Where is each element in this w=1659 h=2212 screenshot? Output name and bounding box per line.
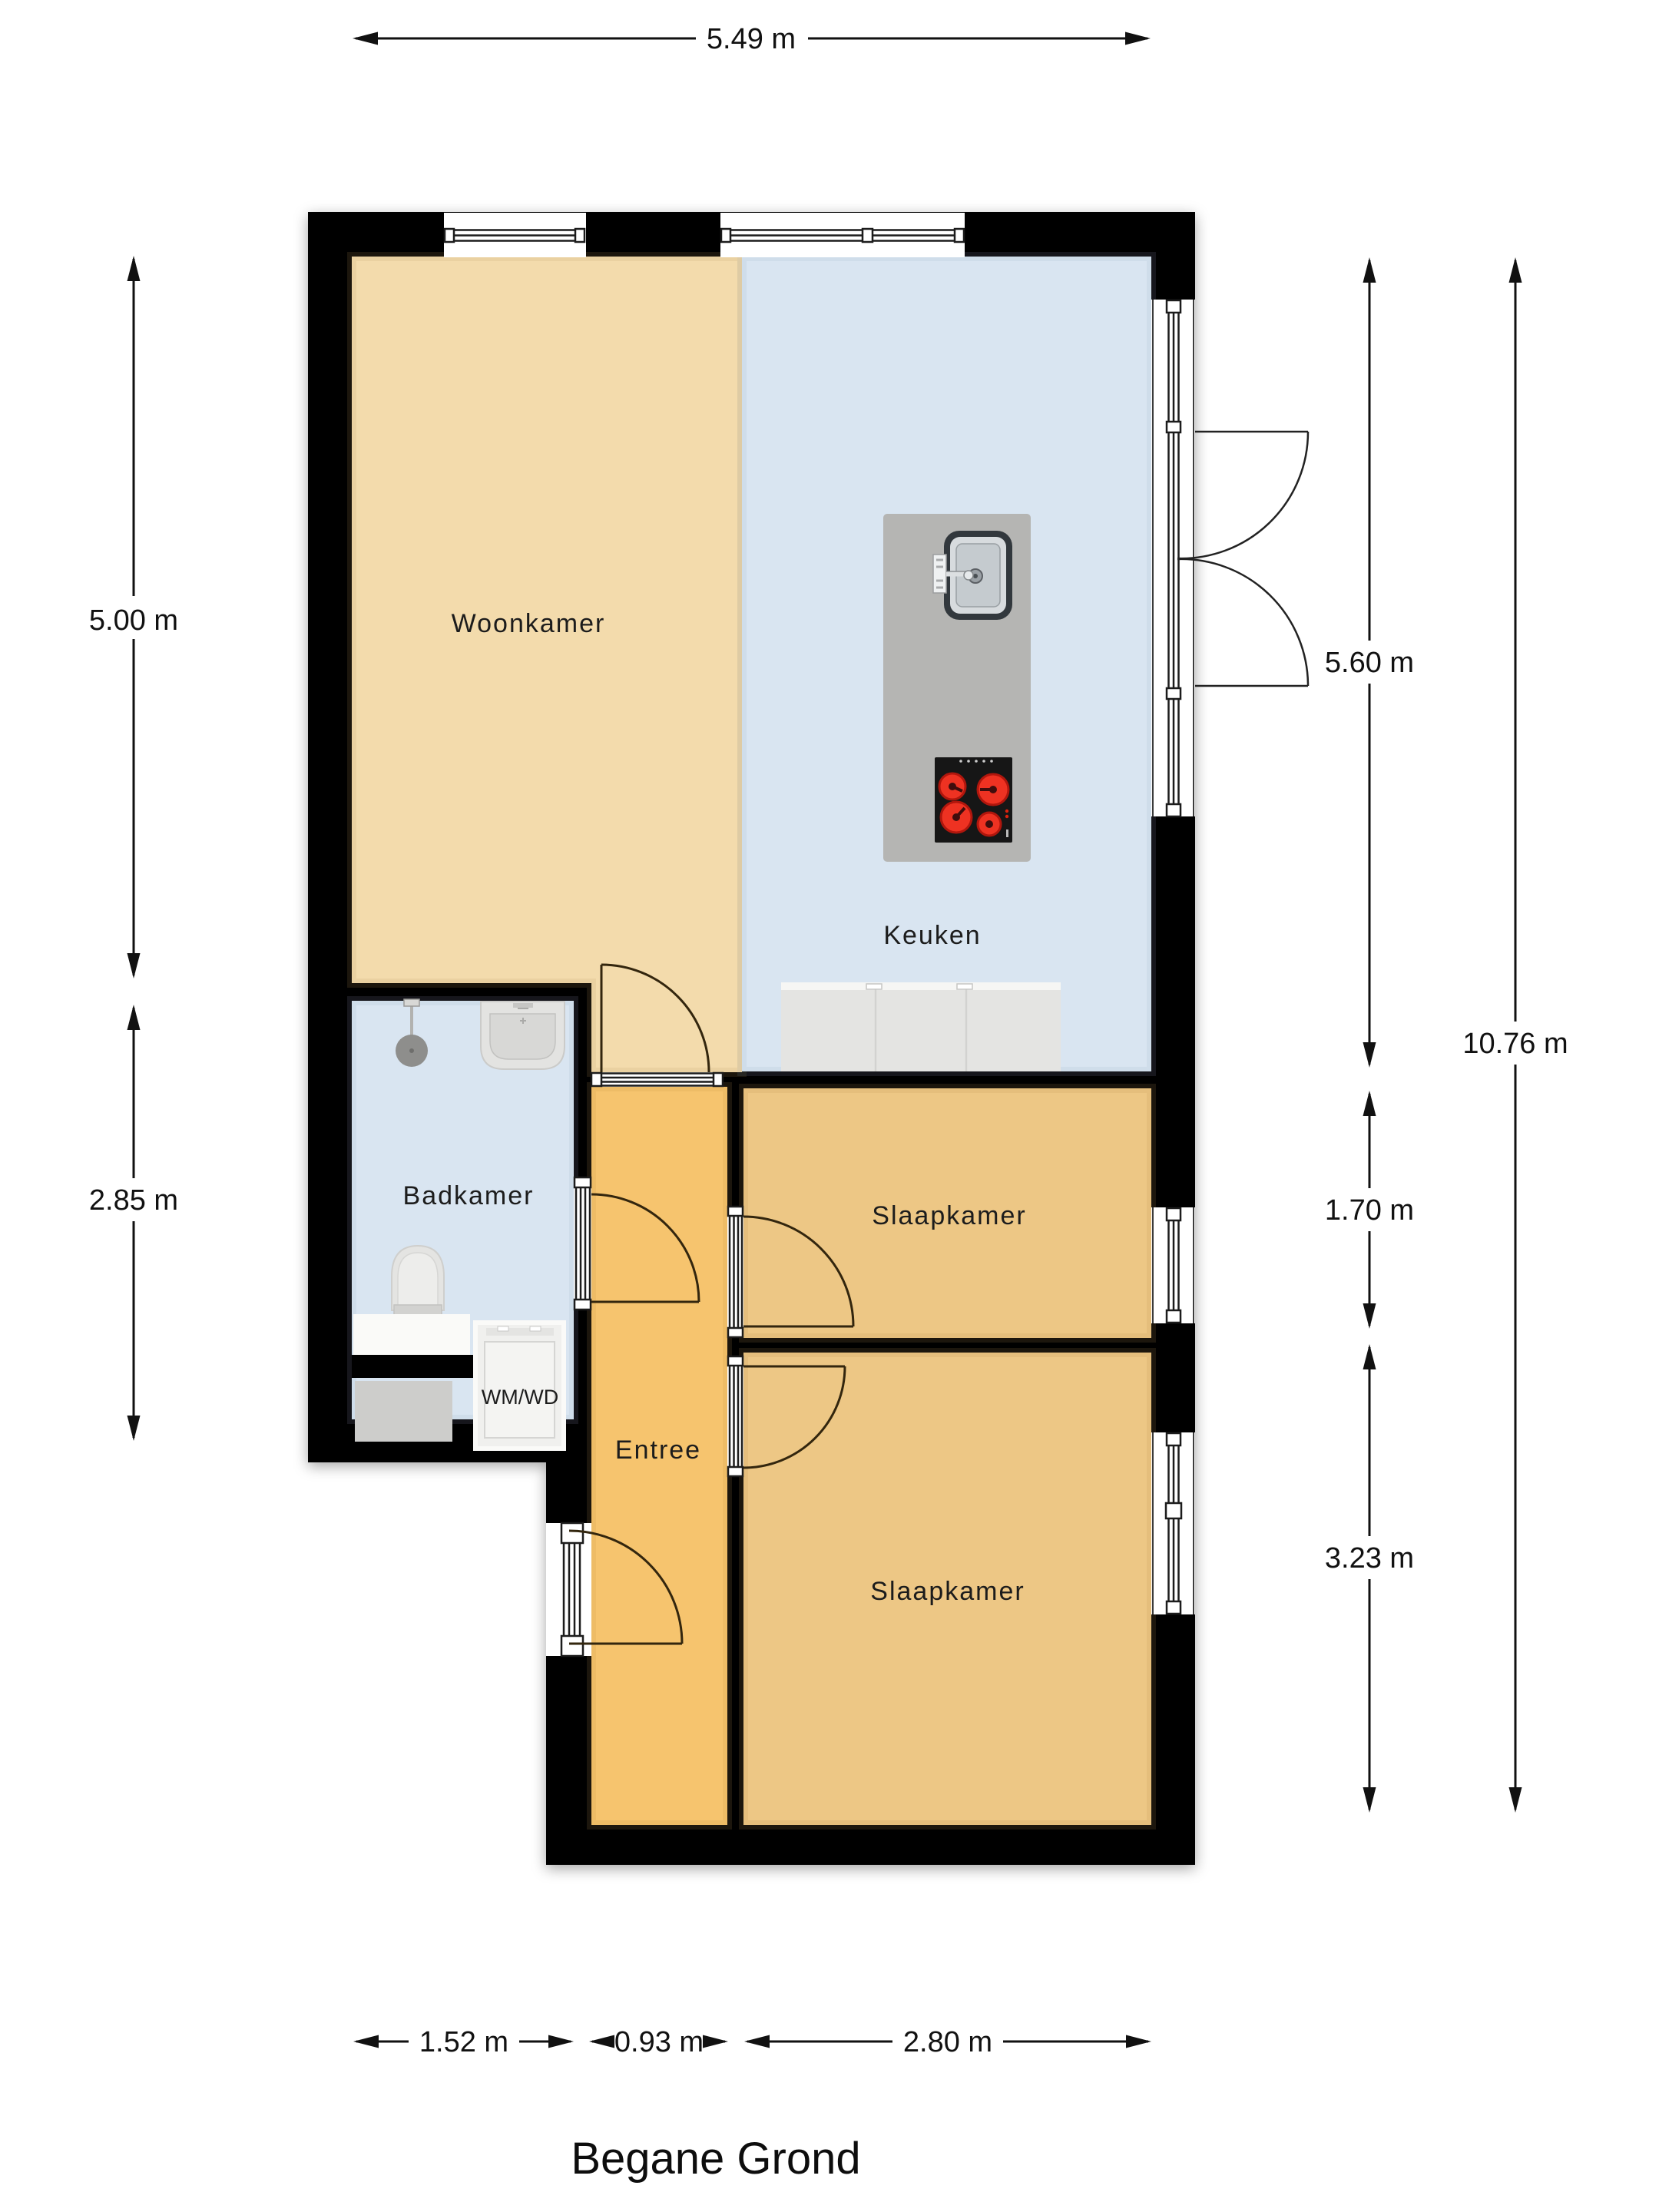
svg-text:1.52 m: 1.52 m [419,2026,508,2058]
svg-text:Slaapkamer: Slaapkamer [872,1201,1026,1230]
svg-text:Slaapkamer: Slaapkamer [870,1577,1025,1606]
svg-text:Entree: Entree [615,1435,701,1465]
svg-text:5.00 m: 5.00 m [89,604,178,637]
svg-text:5.49 m: 5.49 m [707,23,796,55]
svg-text:10.76 m: 10.76 m [1462,1028,1568,1060]
svg-text:1.70 m: 1.70 m [1325,1194,1414,1227]
svg-text:WM/WD: WM/WD [482,1386,558,1409]
svg-text:0.93 m: 0.93 m [614,2026,704,2058]
svg-text:2.80 m: 2.80 m [903,2026,992,2058]
svg-text:3.23 m: 3.23 m [1325,1542,1414,1575]
svg-text:2.85 m: 2.85 m [89,1184,178,1217]
svg-text:Keuken: Keuken [883,921,981,950]
svg-text:Begane Grond: Begane Grond [571,2134,860,2184]
svg-text:Badkamer: Badkamer [403,1181,535,1210]
svg-text:5.60 m: 5.60 m [1325,647,1414,679]
svg-text:Woonkamer: Woonkamer [452,609,606,638]
